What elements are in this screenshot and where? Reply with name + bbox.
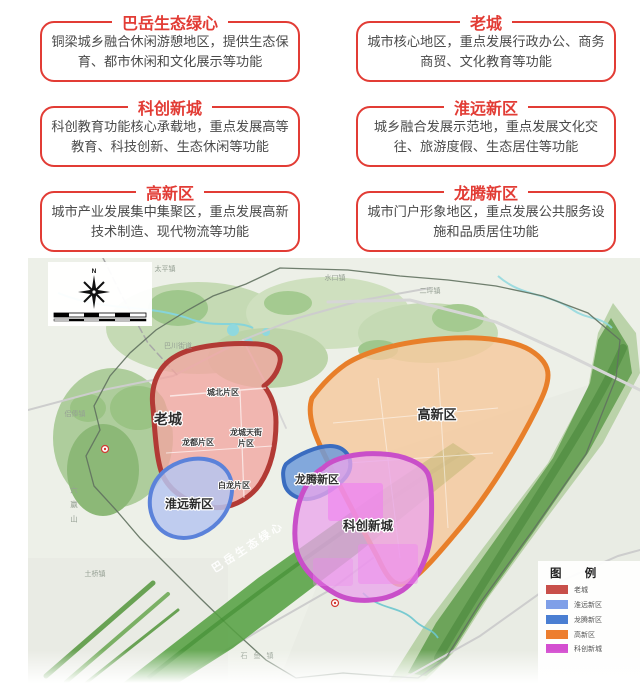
label-longteng: 龙腾新区 <box>294 472 339 486</box>
station-marker-south <box>332 600 339 607</box>
label-longcheng-1: 龙城天街 <box>229 427 262 437</box>
legend-swatch-huaiyuan <box>546 600 568 609</box>
legend-title: 图 例 <box>550 566 606 580</box>
planning-infographic: 巴岳生态绿心 铜梁城乡融合休闲游憩地区，提供生态保育、都市休闲和文化展示等功能 … <box>0 0 640 683</box>
legend-swatch-laocheng <box>546 585 568 594</box>
legend-label: 淮远新区 <box>574 600 602 609</box>
callout-title: 老城 <box>460 10 512 34</box>
compass-north-label: N <box>92 268 97 275</box>
map-canvas: 巴岳生态绿心 老城 高新区 龙腾新区 淮远新区 科创新城 城北片区 龙都片区 龙… <box>28 258 640 683</box>
callout-title: 龙腾新区 <box>444 180 528 204</box>
callout-title: 淮远新区 <box>444 95 528 119</box>
scale-bar <box>54 313 146 321</box>
label-longcheng-2: 片区 <box>238 438 254 448</box>
bottom-fade <box>28 650 640 683</box>
label-longdu: 龙都片区 <box>181 437 214 447</box>
callout-title: 高新区 <box>136 180 204 204</box>
label-tuqiao: 土桥镇 <box>85 569 106 578</box>
label-laocheng: 老城 <box>154 411 182 427</box>
label-gaoxinqu: 高新区 <box>417 407 456 422</box>
callout-old-city: 老城 城市核心地区，重点发展行政办公、商务商贸、文化教育等功能 <box>356 21 616 82</box>
label-huaiyuan: 淮远新区 <box>165 496 213 511</box>
legend-label: 龙腾新区 <box>574 615 602 624</box>
callout-sci-innovation-city: 科创新城 科创教育功能核心承载地，重点发展高等教育、科技创新、生态休闲等功能 <box>40 106 300 167</box>
legend-label: 高新区 <box>574 630 595 639</box>
label-taiping: 太平镇 <box>155 264 176 273</box>
label-shuikou: 水口镇 <box>325 273 346 282</box>
callout-hightech-zone: 高新区 城市产业发展集中集聚区，重点发展高新技术制造、现代物流等功能 <box>40 191 300 252</box>
legend-swatch-longteng <box>546 615 568 624</box>
callout-bayue-green-heart: 巴岳生态绿心 铜梁城乡融合休闲游憩地区，提供生态保育、都市休闲和文化展示等功能 <box>40 21 300 82</box>
legend-swatch-gaoxinqu <box>546 630 568 639</box>
legend-label: 老城 <box>574 585 588 594</box>
callout-title: 巴岳生态绿心 <box>112 10 228 34</box>
callout-longteng-district: 龙腾新区 城市门户形象地区，重点发展公共服务设施和品质居住功能 <box>356 191 616 252</box>
station-marker-west <box>102 446 109 453</box>
label-kechuang: 科创新城 <box>343 518 394 533</box>
label-erping: 二坪镇 <box>420 286 441 295</box>
callout-huaiyuan-district: 淮远新区 城乡融合发展示范地，重点发展文化交往、旅游度假、生态居住等功能 <box>356 106 616 167</box>
label-liuying-shan: 六赢山 <box>69 485 78 530</box>
label-lvfeng: 侣俸镇 <box>65 409 86 418</box>
label-bachuan: 巴川街道 <box>164 341 192 350</box>
compass-scale-box: N <box>48 262 152 326</box>
callout-title: 科创新城 <box>128 95 212 119</box>
label-chengbei: 城北片区 <box>207 387 239 397</box>
label-bailong: 白龙片区 <box>218 480 250 490</box>
planning-map: 巴岳生态绿心 老城 高新区 龙腾新区 淮远新区 科创新城 城北片区 龙都片区 龙… <box>28 258 640 683</box>
